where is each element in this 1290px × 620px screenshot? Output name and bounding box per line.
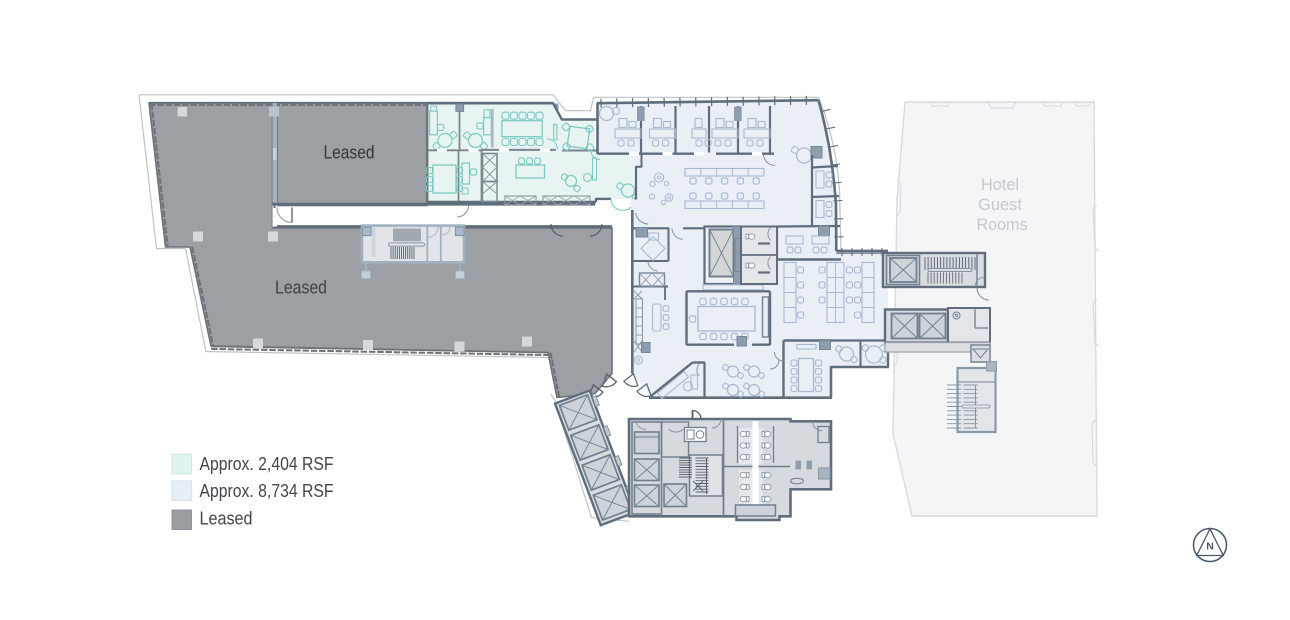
svg-text:Hotel: Hotel (981, 176, 1019, 194)
svg-text:Guest: Guest (978, 196, 1022, 214)
svg-text:Leased: Leased (275, 278, 327, 298)
svg-text:Approx. 2,404 RSF: Approx. 2,404 RSF (200, 454, 334, 474)
svg-text:Leased: Leased (200, 509, 253, 529)
svg-text:Approx. 8,734 RSF: Approx. 8,734 RSF (200, 481, 334, 501)
svg-text:N: N (1206, 541, 1214, 553)
svg-text:Leased: Leased (324, 143, 375, 163)
svg-text:Rooms: Rooms (977, 216, 1028, 234)
